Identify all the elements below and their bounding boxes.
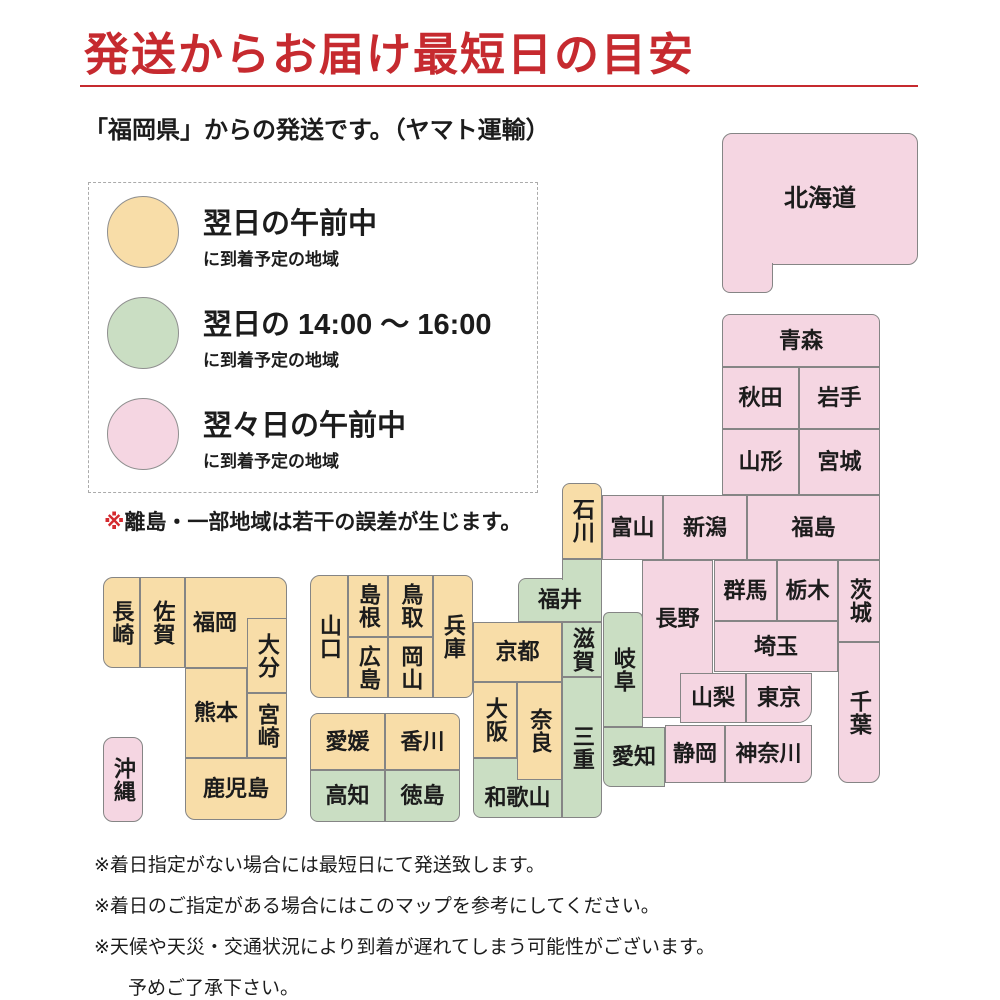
pref-kyoto: 京都 — [473, 622, 562, 682]
pref-label: 福井 — [538, 588, 582, 612]
legend-swatch-next-afternoon-circle — [107, 297, 179, 369]
pref-label: 青森 — [779, 329, 823, 353]
pref-label: 新潟 — [683, 516, 727, 540]
pref-yamanashi: 山梨 — [680, 673, 746, 723]
shipping-info-page: 発送からお届け最短日の目安 「福岡県」からの発送です。（ヤマト運輸） 翌日の午前… — [0, 0, 1000, 1000]
pref-label: 静岡 — [673, 742, 717, 766]
legend-item-next-afternoon: 翌日の 14:00 ～ 16:00 に到着予定の地域 — [107, 297, 519, 371]
pref-fukushima: 福島 — [747, 495, 880, 560]
pref-label: 大分 — [255, 633, 279, 679]
pref-mie: 三重 — [562, 677, 602, 818]
pref-label: 岐阜 — [611, 647, 635, 693]
pref-hyogo: 兵庫 — [433, 575, 473, 698]
pref-label: 山口 — [317, 614, 341, 660]
page-title: 発送からお届け最短日の目安 — [84, 18, 695, 83]
pref-gunma: 群馬 — [714, 560, 777, 621]
footnote-line: ※着日のご指定がある場合にはこのマップを参考にしてください。 — [94, 891, 715, 918]
legend-sublabel: に到着予定の地域 — [203, 346, 492, 371]
pref-saga: 佐賀 — [140, 577, 185, 668]
pref-label: 岡山 — [399, 645, 423, 691]
pref-kagoshima: 鹿児島 — [185, 758, 287, 820]
pref-label: 和歌山 — [484, 786, 550, 810]
legend-swatch-next-morning-circle — [107, 196, 179, 268]
footnotes: ※着日指定がない場合には最短日にて発送致します。 ※着日のご指定がある場合にはこ… — [94, 850, 715, 1000]
pref-hokkaido: 北海道 — [722, 133, 918, 265]
pref-fukui: 福井 — [518, 578, 602, 622]
pref-tottori: 鳥取 — [388, 575, 433, 637]
legend-texts: 翌々日の午前中 に到着予定の地域 — [203, 402, 406, 472]
pref-niigata: 新潟 — [663, 495, 747, 560]
pref-label: 秋田 — [738, 386, 782, 410]
pref-label: 香川 — [400, 730, 444, 754]
pref-toyama: 富山 — [602, 495, 663, 560]
pref-kumamoto: 熊本 — [185, 668, 247, 758]
pref-kanagawa: 神奈川 — [725, 725, 812, 783]
pref-ibaraki: 茨城 — [838, 560, 880, 642]
pref-gifu: 岐阜 — [603, 612, 643, 727]
pref-label: 高知 — [325, 784, 369, 808]
legend-item-next-morning: 翌日の午前中 に到着予定の地域 — [107, 196, 519, 270]
pref-shizuoka: 静岡 — [665, 725, 725, 783]
pref-kochi: 高知 — [310, 770, 385, 822]
pref-label: 愛知 — [612, 745, 656, 769]
pref-label: 岩手 — [817, 386, 861, 410]
pref-iwate: 岩手 — [799, 367, 880, 429]
pref-nara: 奈良 — [517, 682, 562, 780]
pref-miyazaki: 宮崎 — [247, 693, 287, 758]
pref-label: 栃木 — [785, 579, 829, 603]
pref-fukui-ext — [562, 559, 602, 580]
pref-akita: 秋田 — [722, 367, 799, 429]
legend-sublabel: に到着予定の地域 — [203, 447, 406, 472]
legend-texts: 翌日の 14:00 ～ 16:00 に到着予定の地域 — [203, 301, 492, 371]
legend-box: 翌日の午前中 に到着予定の地域 翌日の 14:00 ～ 16:00 に到着予定の… — [88, 182, 538, 493]
pref-label: 奈良 — [528, 708, 552, 754]
legend-texts: 翌日の午前中 に到着予定の地域 — [203, 200, 377, 270]
legend-sublabel: に到着予定の地域 — [203, 245, 377, 270]
pref-yamaguchi: 山口 — [310, 575, 348, 698]
pref-chiba: 千葉 — [838, 642, 880, 783]
pref-nagasaki: 長崎 — [103, 577, 140, 668]
pref-nagano: 長野 — [642, 560, 713, 718]
pref-label: 山梨 — [691, 686, 735, 710]
pref-label: 埼玉 — [754, 635, 798, 659]
note-asterisk-mark: ※ — [104, 511, 124, 534]
pref-ishikawa: 石川 — [562, 483, 602, 559]
pref-label: 千葉 — [847, 690, 871, 736]
pref-label: 兵庫 — [441, 614, 465, 660]
pref-hokkaido-ext — [722, 263, 773, 293]
pref-label: 佐賀 — [151, 600, 175, 646]
pref-label: 広島 — [356, 645, 380, 691]
pref-label: 宮城 — [817, 450, 861, 474]
pref-ehime: 愛媛 — [310, 713, 385, 770]
pref-label: 北海道 — [784, 186, 856, 212]
title-underline — [80, 85, 918, 87]
pref-label: 長野 — [655, 607, 699, 631]
pref-label: 福岡 — [193, 611, 237, 635]
pref-tokushima: 徳島 — [385, 770, 460, 822]
islands-accuracy-note: ※離島・一部地域は若干の誤差が生じます。 — [104, 506, 521, 536]
pref-shiga: 滋賀 — [562, 622, 602, 677]
pref-label: 茨城 — [847, 578, 871, 624]
pref-label: 愛媛 — [325, 730, 369, 754]
pref-label: 富山 — [610, 516, 654, 540]
pref-label: 福島 — [791, 516, 835, 540]
pref-wakayama: 和歌山 — [473, 758, 562, 818]
origin-subtitle: 「福岡県」からの発送です。（ヤマト運輸） — [84, 110, 550, 145]
legend-label: 翌日の午前中 — [203, 200, 377, 242]
pref-label: 熊本 — [194, 701, 238, 725]
pref-aomori: 青森 — [722, 314, 880, 367]
legend-swatch-two-days-morning-circle — [107, 398, 179, 470]
pref-hiroshima: 広島 — [348, 637, 388, 698]
pref-label: 神奈川 — [735, 742, 801, 766]
pref-shimane: 島根 — [348, 575, 388, 637]
pref-tokyo: 東京 — [746, 673, 812, 723]
pref-label: 石川 — [570, 498, 594, 544]
pref-label: 京都 — [495, 640, 539, 664]
pref-label: 徳島 — [400, 784, 444, 808]
pref-osaka: 大阪 — [473, 682, 517, 758]
pref-label: 宮崎 — [255, 703, 279, 749]
footnote-line: 予めご了承下さい。 — [94, 973, 715, 1000]
pref-miyagi: 宮城 — [799, 429, 880, 495]
pref-label: 沖縄 — [111, 757, 135, 803]
pref-aichi: 愛知 — [603, 727, 665, 787]
pref-label: 鹿児島 — [203, 777, 269, 801]
pref-yamagata: 山形 — [722, 429, 799, 495]
pref-okinawa: 沖縄 — [103, 737, 143, 822]
legend-item-two-days-morning: 翌々日の午前中 に到着予定の地域 — [107, 398, 519, 472]
note-text: 離島・一部地域は若干の誤差が生じます。 — [124, 511, 521, 534]
pref-label: 鳥取 — [399, 583, 423, 629]
pref-kagawa: 香川 — [385, 713, 460, 770]
pref-label: 山形 — [738, 450, 782, 474]
pref-label: 群馬 — [723, 579, 767, 603]
pref-label: 大阪 — [483, 697, 507, 743]
pref-label: 東京 — [757, 686, 801, 710]
pref-label: 島根 — [356, 583, 380, 629]
pref-oita: 大分 — [247, 618, 287, 693]
pref-tochigi: 栃木 — [777, 560, 838, 621]
pref-label: 三重 — [570, 725, 594, 771]
pref-label: 長崎 — [110, 600, 134, 646]
pref-label: 滋賀 — [570, 627, 594, 673]
pref-saitama: 埼玉 — [714, 621, 838, 672]
legend-label: 翌日の 14:00 ～ 16:00 — [203, 301, 492, 343]
footnote-line: ※天候や天災・交通状況により到着が遅れてしまう可能性がございます。 — [94, 932, 715, 959]
legend-label: 翌々日の午前中 — [203, 402, 406, 444]
pref-okayama: 岡山 — [388, 637, 433, 698]
footnote-line: ※着日指定がない場合には最短日にて発送致します。 — [94, 850, 715, 877]
pref-fukuoka: 福岡 — [185, 577, 287, 668]
